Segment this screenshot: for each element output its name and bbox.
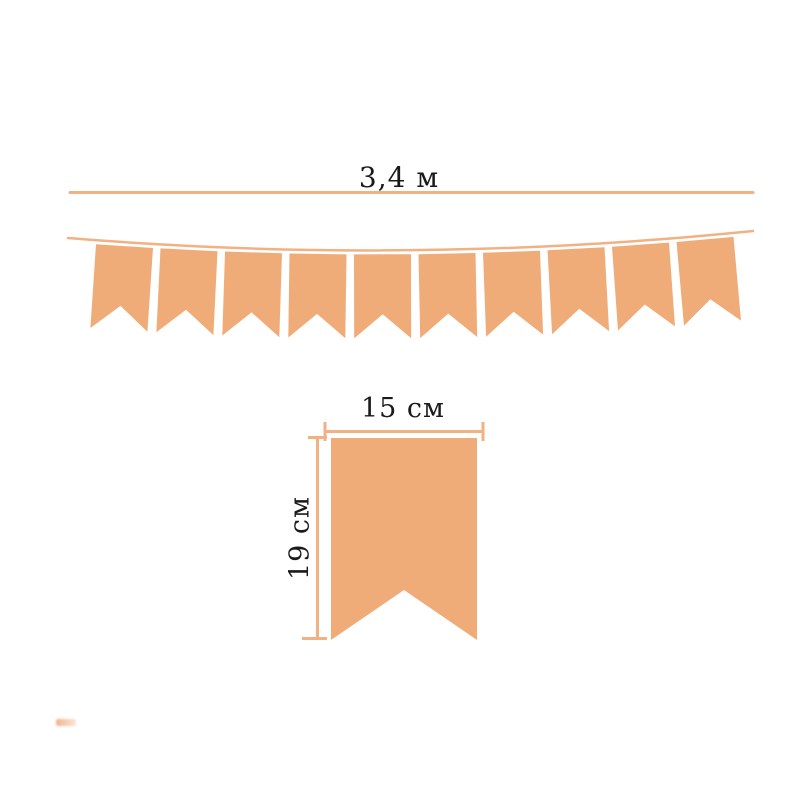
bunting-dimensions-diagram: 3,4 м 15 см 19 см (0, 0, 800, 800)
single-flag (331, 438, 477, 640)
banner-flag (419, 253, 478, 338)
flag-width-label: 15 см (330, 393, 476, 424)
banner-flag (677, 237, 742, 326)
banner-flag (90, 244, 153, 332)
banner-flag-row (90, 237, 741, 339)
banner-flag (483, 251, 543, 337)
banner-flag (222, 252, 282, 338)
banner-length-label: 3,4 м (299, 161, 499, 194)
flag-height-label: 19 см (285, 496, 316, 580)
watermark-smudge (56, 719, 76, 726)
banner-flag (612, 243, 675, 331)
banner-flag (288, 254, 346, 339)
banner-flag (156, 248, 217, 335)
banner-flag (548, 247, 610, 334)
banner-flag (354, 254, 411, 338)
